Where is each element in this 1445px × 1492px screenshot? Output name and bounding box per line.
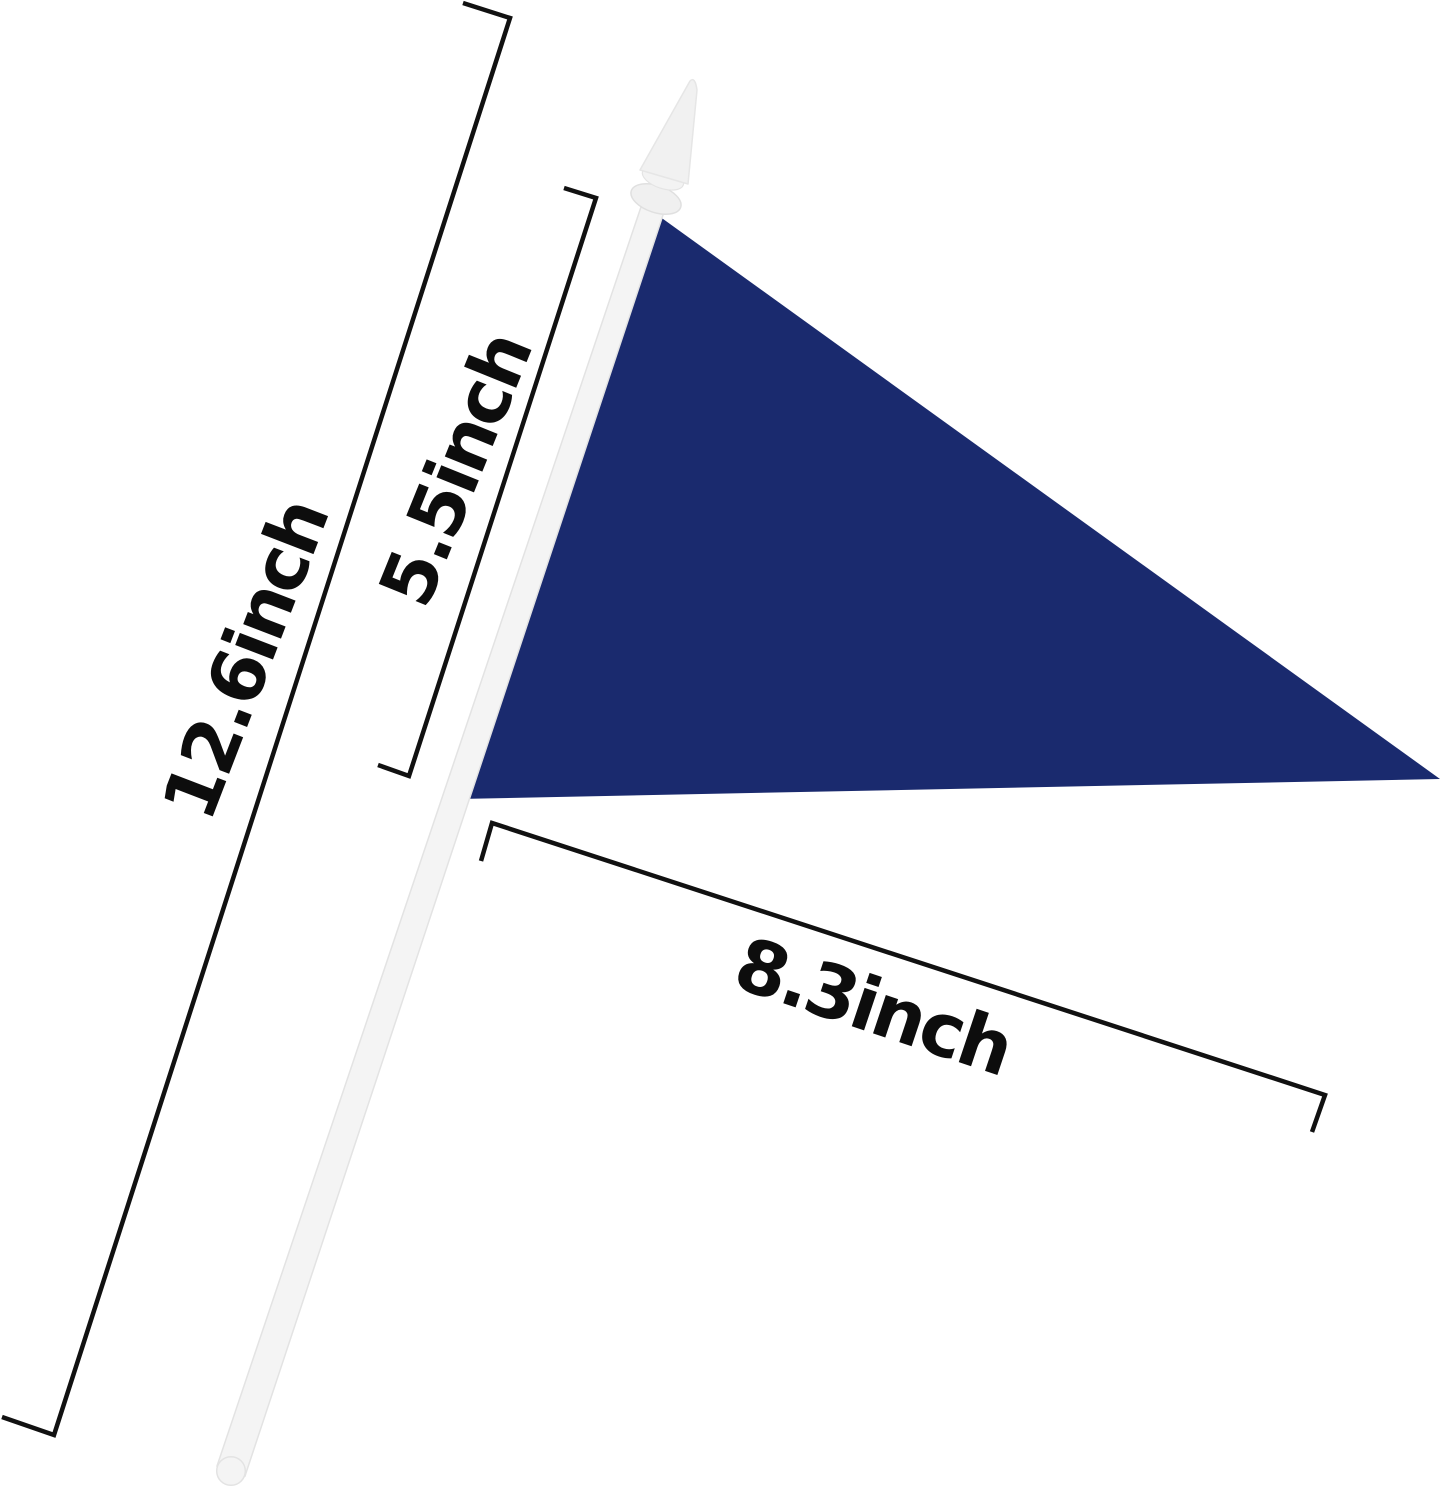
pennant-flag (458, 211, 1440, 799)
pole-bottom-tip (217, 1457, 246, 1486)
label-pole-length: 12.6inch (146, 489, 346, 831)
pole-finial-cone (640, 80, 697, 184)
product-dimension-diagram: 12.6inch 5.5inch 8.3inch (0, 0, 1445, 1492)
pennant-flag-diagram: 12.6inch 5.5inch 8.3inch (0, 0, 1445, 1492)
